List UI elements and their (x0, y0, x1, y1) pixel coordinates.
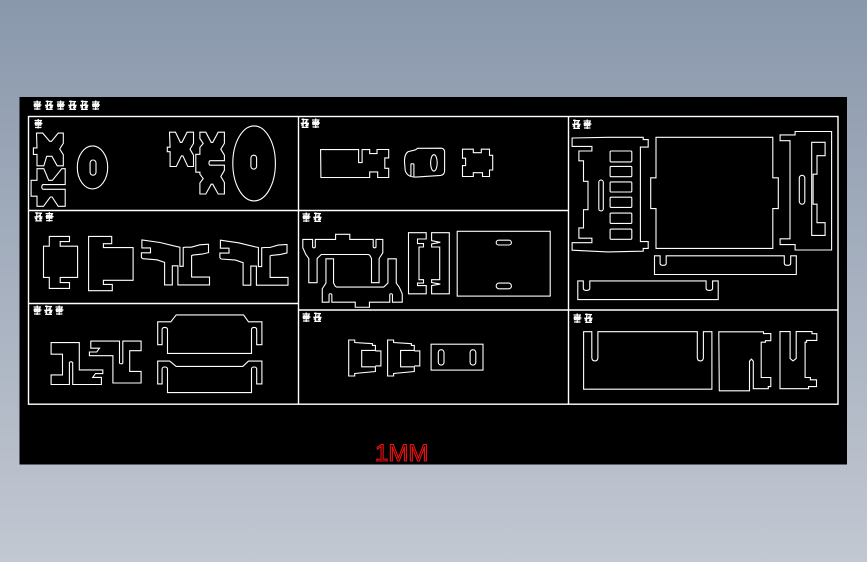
svg-text:1MM: 1MM (375, 440, 428, 467)
